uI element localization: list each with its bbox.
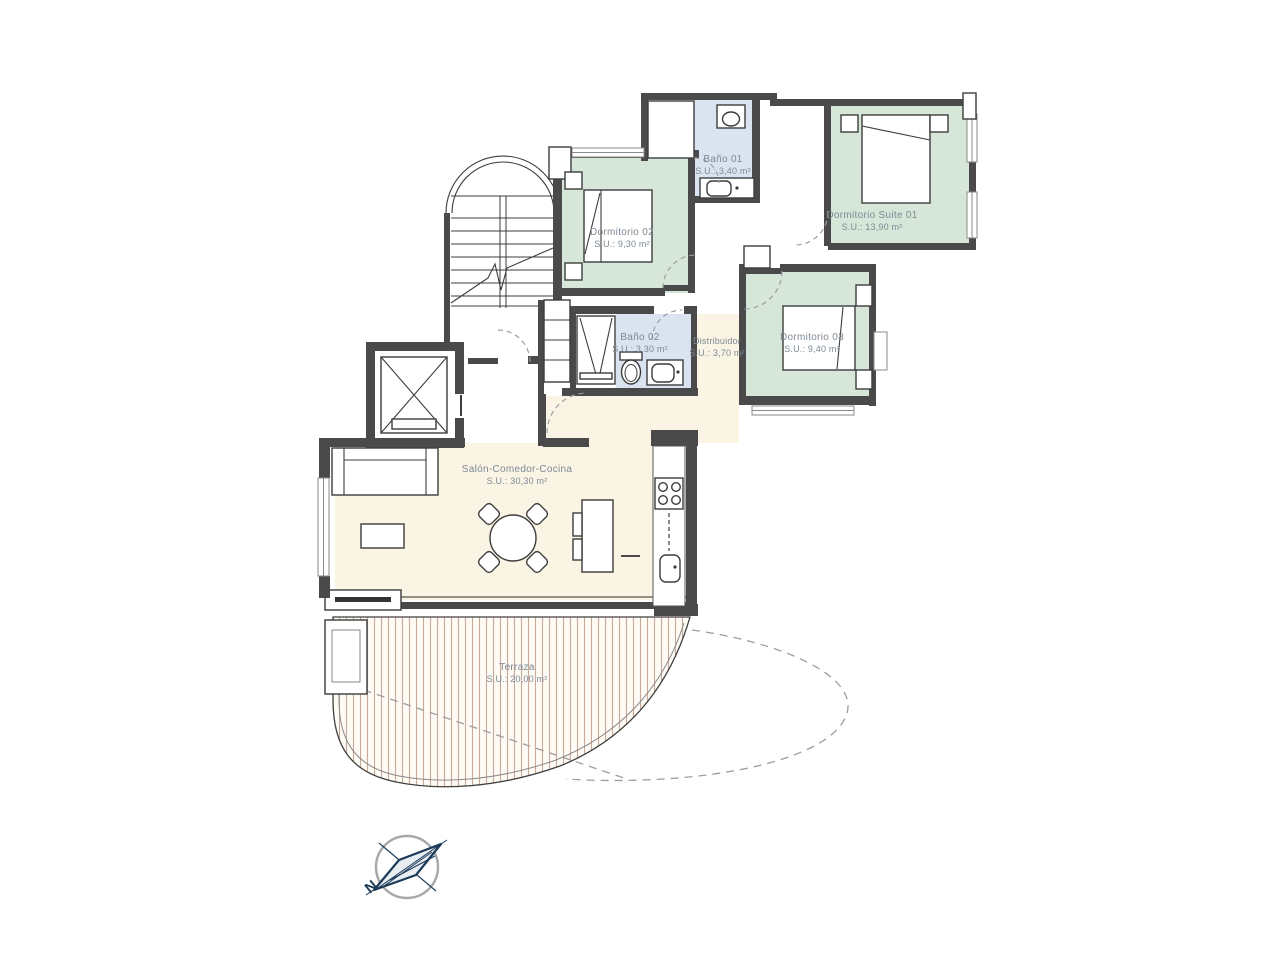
corridor-closet	[744, 246, 770, 268]
label-terraza-name: Terraza	[499, 662, 535, 673]
stair-arch-outer	[446, 156, 560, 213]
dorm02-door-leaf	[663, 285, 695, 291]
dorm03-door-leaf	[744, 268, 782, 274]
label-dorm03-area: S.U.: 9,40 m²	[784, 344, 840, 354]
label-bano02-name: Baño 02	[620, 332, 659, 343]
suite-door-arc	[795, 212, 828, 245]
label-bano01-area: S.U.: 3,40 m²	[695, 166, 751, 176]
pillar-top-right	[963, 93, 976, 119]
label-suite01-name: Dormitorio Suite 01	[826, 210, 917, 221]
entrance-door-arc	[498, 330, 530, 362]
label-suite01-area: S.U.: 13,90 m²	[842, 222, 903, 232]
kitchen-counter	[653, 446, 685, 606]
stove	[655, 478, 683, 509]
label-dorm02-area: S.U.: 9,30 m²	[594, 239, 650, 249]
stair-break-line	[451, 248, 553, 303]
terrace	[325, 617, 848, 787]
hall-closet	[544, 300, 570, 382]
terrace-planter	[325, 620, 367, 694]
elevator	[366, 342, 464, 448]
floor-plan-canvas: Dormitorio 02 S.U.: 9,30 m² Baño 01 S.U.…	[0, 0, 1280, 960]
label-distribuidor-name: Distribuidor	[693, 336, 741, 346]
label-salon-name: Salón-Comedor-Cocina	[462, 464, 573, 475]
compass-icon: N	[362, 836, 447, 898]
wardrobe	[648, 101, 694, 158]
label-dorm02-name: Dormitorio 02	[590, 227, 654, 238]
entrance-door-leaf	[468, 358, 498, 364]
label-bano01-name: Baño 01	[703, 154, 742, 165]
terrace-deck	[333, 617, 690, 787]
kitchen-sink	[660, 555, 680, 582]
stair-left-wall	[444, 213, 450, 344]
dining-table	[490, 515, 536, 561]
floor-plan-svg: Dormitorio 02 S.U.: 9,30 m² Baño 01 S.U.…	[0, 0, 1280, 960]
stair-arch-inner	[452, 162, 554, 213]
label-terraza-area: S.U.: 20,00 m²	[487, 674, 548, 684]
coffee-table	[361, 524, 404, 548]
label-distribuidor-area: S.U.: 3,70 m²	[689, 348, 745, 358]
label-salon-area: S.U.: 30,30 m²	[487, 476, 548, 486]
stair-treads	[451, 196, 553, 308]
sofa	[332, 448, 438, 495]
label-dorm03-name: Dormitorio 03	[780, 332, 844, 343]
dorm03-bay-window	[874, 332, 887, 370]
label-bano02-area: S.U.: 3,30 m²	[612, 344, 668, 354]
